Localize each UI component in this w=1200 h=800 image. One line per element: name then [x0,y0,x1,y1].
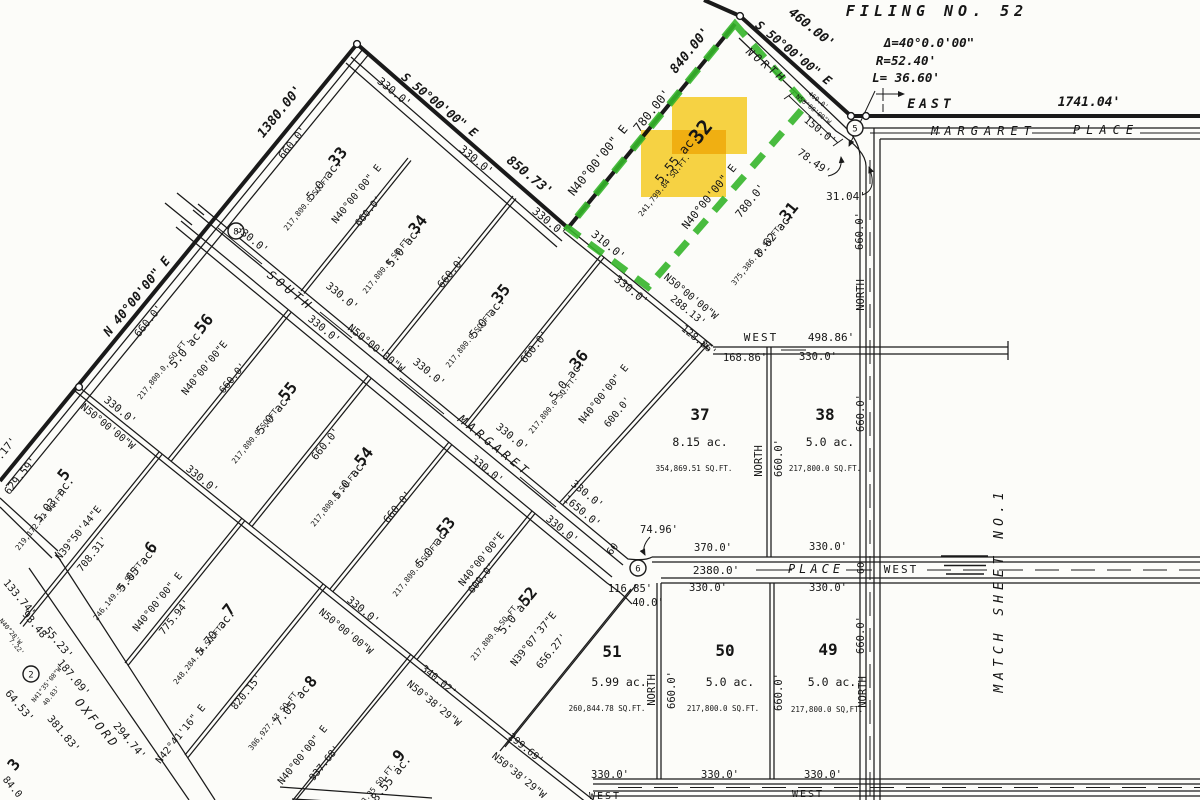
lot-number-51: 51 [602,642,621,661]
dimension-label: N40°00'00" E [577,363,631,426]
dimension-label: 660.0' [773,439,785,477]
dimension-label: 217,800.0 SQ.FT. [282,171,334,233]
dimension-label: 133.74' [0,577,38,619]
dimension-label: N40°00'00" E [276,724,330,787]
dimension-label: 660.0' [854,212,866,250]
curve-delta: Δ=40°0.0'00" [883,35,974,50]
dimension-label: 217,800.0 SQ.FT. [361,234,413,296]
dimension-label: 660.0' [666,671,678,709]
dimension-label: 217,800.0 SQ.FT. [309,467,361,529]
dimension-label: N40°00'00" E [131,571,185,634]
dimension-label: 370.0' [694,542,732,554]
dimension-label: 498.86' [808,331,854,344]
dimension-label: 78.49' [795,147,833,179]
dimension-label: 660.0' [855,394,867,432]
curve-length: L= 36.60' [872,70,940,85]
dimension-label: 84.0 [0,775,24,800]
dimension-label: NORTH [646,674,658,706]
dimension-label: 187.09' [54,657,92,699]
dimension-label: 260,844.78 SQ.FT. [569,704,646,713]
road-place: PLACE [788,562,844,576]
bearing-east: EAST [907,97,954,112]
dimension-label: 330.0' [233,223,270,256]
dimension-label: 217,800.0 SQ.FT. [230,404,282,466]
dimension-label: 330.0' [344,594,381,627]
dimension-label: WEST [589,791,621,800]
dimension-label: 629.59' [2,455,39,497]
dimension-label: 660.0' [132,303,165,340]
bearing-west: WEST [744,331,779,344]
road-west: WEST [884,563,919,576]
dimension-label: 219,172.42 SQ.FT. [13,487,68,552]
junction-number: 6 [635,565,640,575]
dimension-label: 660.0' [518,329,551,366]
dimension-label: 330.0' [804,769,842,781]
road-margaret-place: MARGARET [930,124,1037,138]
dimension-label: 5.0 ac. [706,675,754,689]
dimension-label: 660.0' [855,616,867,654]
filing-title: FILING NO. 52 [846,2,1028,20]
junction-number: 2 [28,671,33,681]
dimension-label: 60 [605,541,621,557]
dimension-label: 60 [856,562,867,574]
junction-markers: 5628 [23,120,863,682]
dimension-label: 330.0' [591,769,629,781]
dimension-label: 660.0' [435,254,468,291]
dimension-label: 1741.04' [1058,95,1121,110]
dimension-label: 375,386.10 SQ.FT. [729,222,784,287]
lot-number-50: 50 [715,641,734,660]
dimension-label: 5.99 ac. [591,675,646,689]
dimension-label: NORTH [855,279,867,311]
dimension-label: 330.0' [809,541,847,553]
plat-map-svg: 5628 FILING NO. 52Δ=40°0.0'00"R=52.40'L=… [0,0,1200,800]
road-margaret-place-2: PLACE [1073,123,1139,137]
dimension-label: 840.00' [667,25,713,77]
dimension-label: 8.15 ac. [672,435,727,449]
dimension-label: 40.0' [632,597,664,609]
dimension-label: 116.85' [608,583,652,595]
dimension-label: 74.96' [640,524,678,536]
dimension-label: 381.83' [44,713,82,755]
plat-map-sheet: 5628 FILING NO. 52Δ=40°0.0'00"R=52.40'L=… [0,0,1200,800]
dimension-label: 330.0' [183,463,220,496]
dimension-label: 330.0' [701,769,739,781]
map-labels: FILING NO. 52Δ=40°0.0'00"R=52.40'L= 36.6… [0,2,1139,800]
dimension-label: 330.0' [543,513,580,546]
dimension-label: 299.69' [506,732,546,767]
dimension-label: 248,284.74 SQ.FT. [171,621,226,686]
dimension-label: 660.0' [217,361,248,396]
dimension-label: 217,800.0 SQ.FT. [469,601,521,663]
dimension-label: 660.0' [381,489,414,526]
dimension-label: NORTH [753,445,765,477]
dimension-label: 306,927.43 SQ.FT. [246,687,301,752]
dimension-label: 31.04' [826,190,866,203]
dimension-label: 330.0' [809,582,847,594]
lot-number-38: 38 [815,405,834,424]
junction-number: 5 [852,125,857,135]
dimension-label: 5.0 ac. [806,435,854,449]
dimension-label: 660.0' [276,125,309,162]
dimension-label: NORTH [857,676,869,708]
dimension-label: 2380.0' [693,564,739,577]
dimension-label: 246,149.55 SQ.FT. [91,557,146,622]
dimension-label: 660.0' [773,673,785,711]
curve-radius: R=52.40' [876,53,936,68]
dimension-label: 600.0' [602,395,633,430]
dimension-label: N42°41'16" E [154,703,208,766]
lot-number-37: 37 [690,405,709,424]
lot-number-3: 3 [3,755,24,774]
dimension-label: 217,800.0 SQ,FT. [791,705,863,714]
dimension-label: 330.0' [323,280,360,313]
dimension-label: 660.0' [309,426,342,463]
dimension-label: 217,800.0 SQ.FT. [527,374,579,436]
dimension-label: 330.0' [689,582,727,594]
dimension-label: N50°00'00"W [345,322,407,376]
dimension-label: 217,800.0 SQ.FT. [789,464,861,473]
dimension-label: 128.86' [679,324,719,359]
lot-number-49: 49 [818,640,837,659]
match-line-label: MATCH SHEET NO.1 [992,487,1007,693]
dimension-label: WEST [792,789,824,800]
dimension-label: 5.0 ac. [808,675,856,689]
dimension-label: 217,800.0 SQ.FT. [687,704,759,713]
dimension-label: 330.0' [799,351,837,363]
dimension-label: 168.86' [723,352,767,364]
dimension-label: 217,800.0 SQ.FT. [391,537,443,599]
dimension-label: 217,800.0 SQ.FT. [444,308,496,370]
dimension-label: 354,869.51 SQ.FT. [656,464,733,473]
dimension-label: S 50°00'00" E [399,70,481,140]
dimension-label: 64.53' [3,688,37,725]
